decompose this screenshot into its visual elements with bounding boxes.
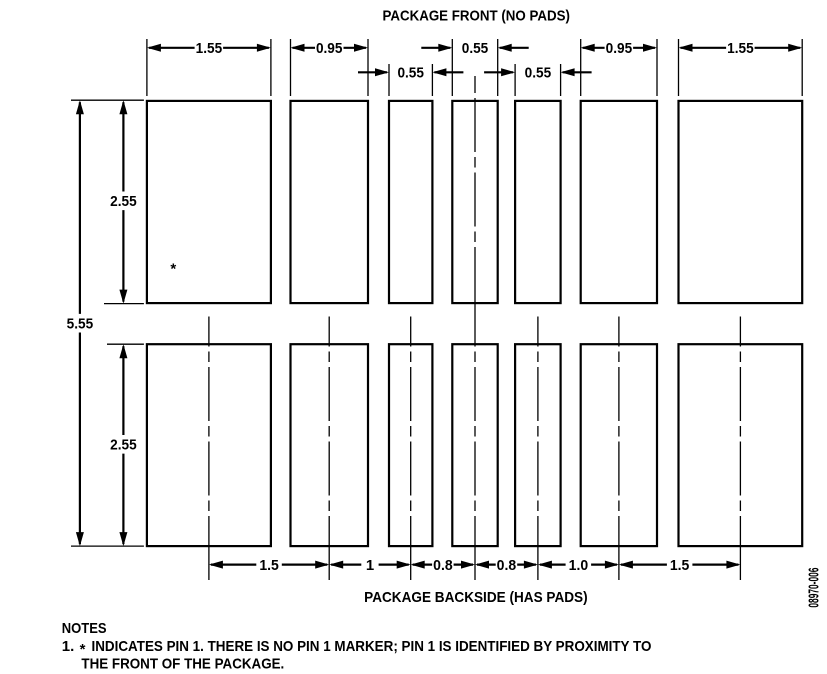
svg-text:1.55: 1.55 — [196, 40, 223, 57]
svg-text:1.: 1. — [62, 638, 75, 655]
svg-text:*: * — [170, 261, 176, 278]
svg-text:0.8: 0.8 — [497, 557, 517, 574]
svg-text:0.55: 0.55 — [397, 65, 424, 82]
svg-text:5.55: 5.55 — [67, 315, 94, 332]
svg-text:PACKAGE FRONT (NO PADS): PACKAGE FRONT (NO PADS) — [382, 8, 570, 25]
svg-text:THE FRONT OF THE PACKAGE.: THE FRONT OF THE PACKAGE. — [81, 656, 284, 673]
svg-text:2.55: 2.55 — [110, 193, 137, 210]
svg-text:0.95: 0.95 — [606, 40, 633, 57]
svg-text:1: 1 — [366, 557, 374, 574]
svg-text:1.5: 1.5 — [670, 557, 690, 574]
svg-text:PACKAGE BACKSIDE (HAS PADS): PACKAGE BACKSIDE (HAS PADS) — [364, 589, 588, 606]
svg-text:INDICATES PIN 1. THERE IS NO P: INDICATES PIN 1. THERE IS NO PIN 1 MARKE… — [92, 638, 652, 655]
svg-text:NOTES: NOTES — [62, 620, 107, 637]
svg-text:1.0: 1.0 — [569, 557, 589, 574]
svg-text:1.5: 1.5 — [259, 557, 279, 574]
svg-text:1.55: 1.55 — [727, 40, 754, 57]
svg-text:0.95: 0.95 — [316, 40, 343, 57]
svg-text:0.55: 0.55 — [462, 40, 489, 57]
svg-text:0.8: 0.8 — [433, 557, 453, 574]
svg-text:2.55: 2.55 — [110, 437, 137, 454]
svg-text:0.55: 0.55 — [525, 65, 552, 82]
svg-text:08970-006: 08970-006 — [805, 568, 822, 608]
